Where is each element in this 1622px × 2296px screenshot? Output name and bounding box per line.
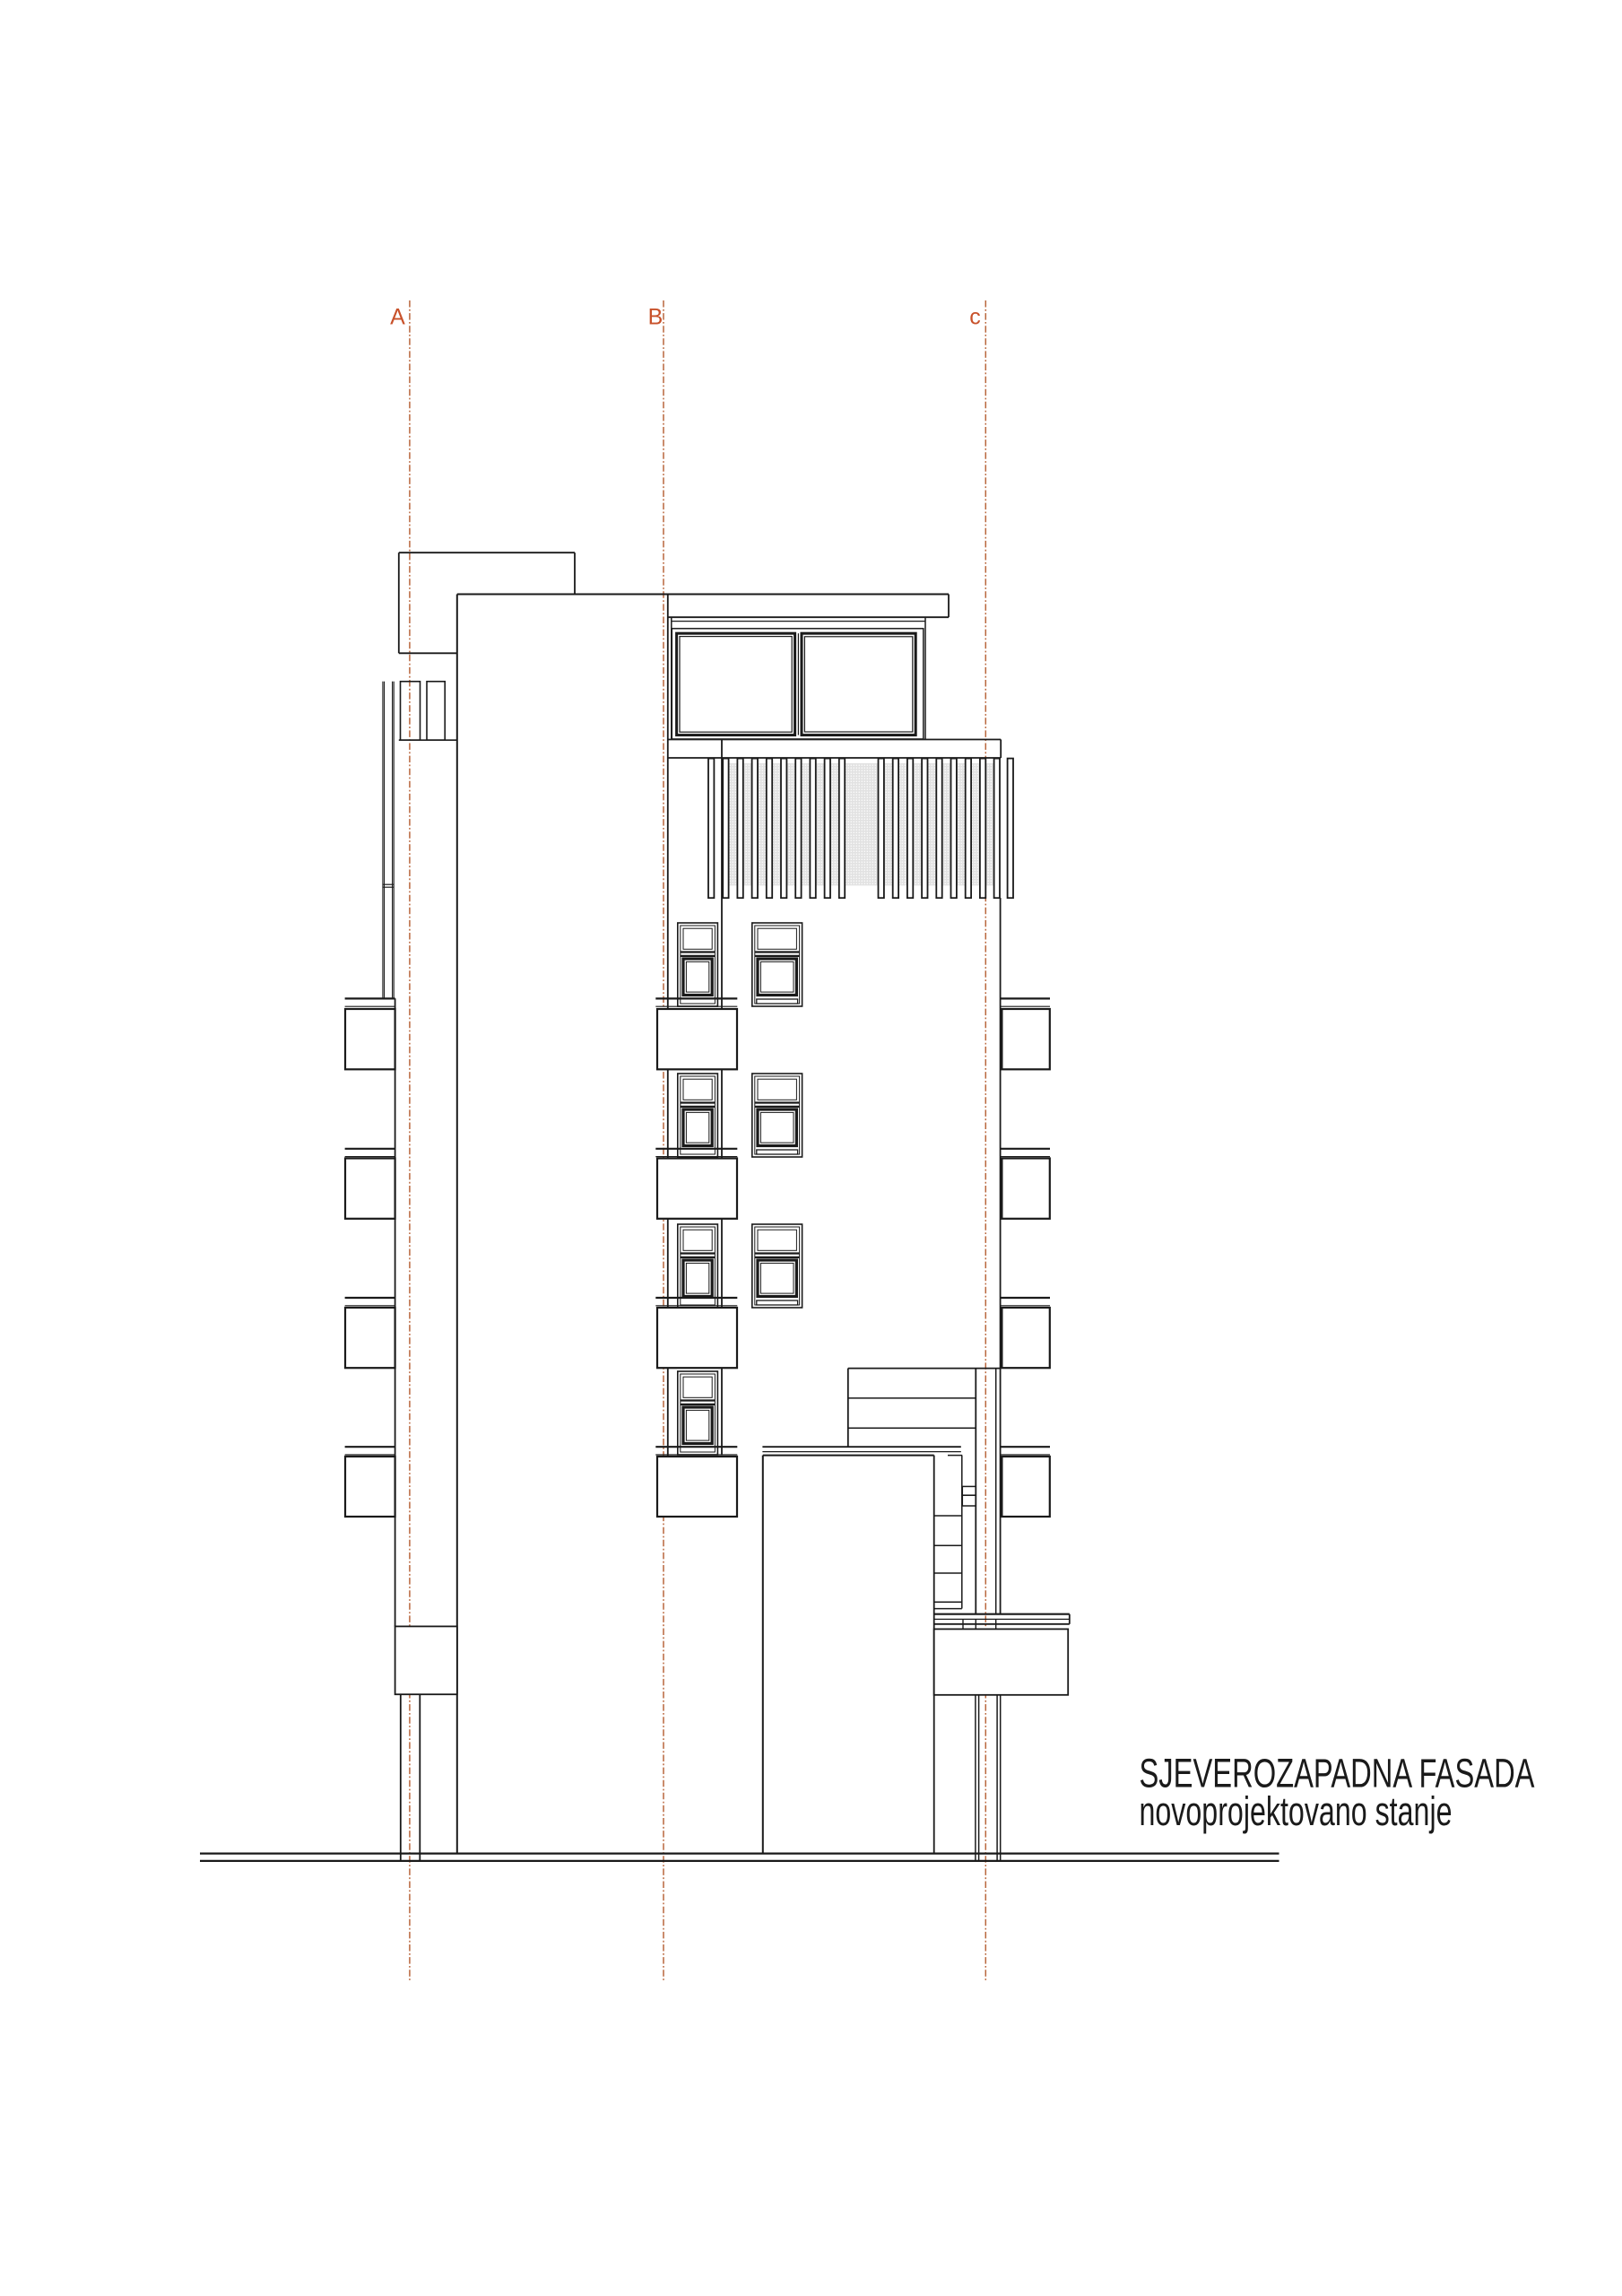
svg-text:c: c [969,305,981,330]
svg-text:A: A [390,305,405,330]
svg-text:novoprojektovano stanje: novoprojektovano stanje [1140,1788,1453,1834]
svg-text:B: B [648,305,664,330]
